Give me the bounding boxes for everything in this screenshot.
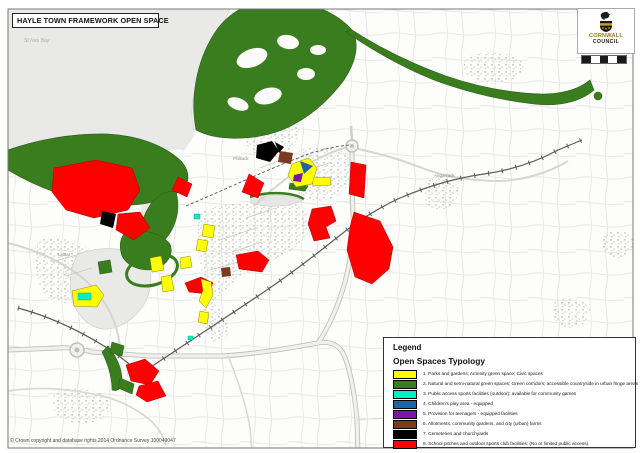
legend-panel: Legend Open Spaces Typology 1. Parks and… [383, 337, 636, 448]
legend-subheading: Open Spaces Typology [393, 356, 635, 366]
label-angarrack: Angarrack [434, 173, 455, 178]
legend-item: 5. Provision for teenagers - equipped fa… [393, 410, 635, 420]
swatch-natural-green [393, 380, 417, 389]
label-phillack: Phillack [233, 156, 249, 161]
legend-item: 3. Public access sports facilities (outd… [393, 390, 635, 400]
legend-item: 8. School pitches and outdoor sports clu… [393, 439, 635, 449]
swatch-cemeteries [393, 430, 417, 439]
label-lelant: Lelant [58, 252, 71, 257]
legend-heading: Legend [393, 343, 635, 352]
copyright-note: © Crown copyright and database rights 20… [10, 438, 176, 444]
legend-item: 7. Cemeteries and churchyards [393, 429, 635, 439]
legend-item: 2. Natural and semi-natural green spaces… [393, 380, 635, 390]
swatch-play-area [393, 400, 417, 409]
swatch-sports [393, 390, 417, 399]
label-st-ives-bay: St Ives Bay [24, 38, 50, 44]
swatch-teenagers [393, 410, 417, 419]
map-title-box: HAYLE TOWN FRAMEWORK OPEN SPACE [12, 13, 159, 28]
crest-icon [596, 11, 616, 33]
legend-item: 6. Allotments, community gardens, and ci… [393, 419, 635, 429]
logo-org-line2: COUNCIL [593, 39, 619, 45]
swatch-school-pitches [393, 440, 417, 449]
map-title: HAYLE TOWN FRAMEWORK OPEN SPACE [17, 16, 169, 25]
scale-bar [581, 55, 627, 64]
swatch-allotments [393, 420, 417, 429]
legend-item: 1. Parks and gardens; Amenity green spac… [393, 370, 635, 380]
map-sheet: St Ives Bay Phillack Lelant Angarrack HA… [0, 0, 640, 453]
swatch-parks [393, 370, 417, 379]
legend-item: 4. Children's play area - equipped [393, 400, 635, 410]
cornwall-council-logo: CORNWALL COUNCIL [577, 8, 635, 54]
